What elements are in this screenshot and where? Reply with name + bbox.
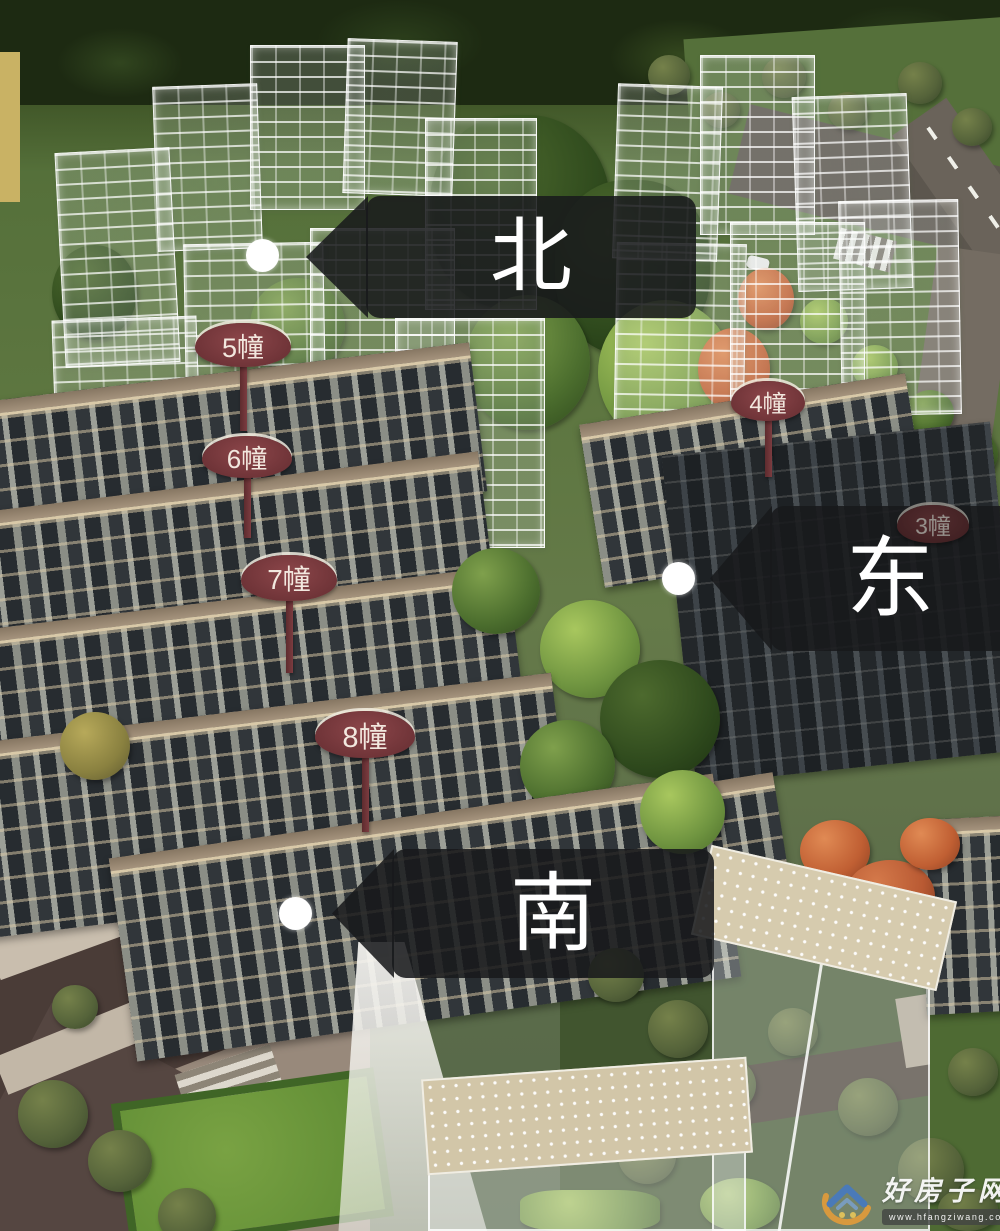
- building-sign-label: 7幢: [241, 555, 337, 601]
- north-dot: [246, 239, 279, 272]
- direction-banner-north: 北: [366, 196, 696, 318]
- watermark-text-block: 好房子网 www.hfangziwang.com: [882, 1178, 1000, 1225]
- building-sign-label: 3幢: [897, 505, 969, 543]
- site-name: 好房子网: [882, 1178, 1000, 1205]
- sign-post: [765, 421, 772, 477]
- building-sign-6: 6幢: [202, 436, 292, 538]
- tree: [60, 712, 130, 780]
- building-sign-label: 5幢: [195, 323, 291, 367]
- sign-post: [286, 601, 293, 673]
- building-sign-8: 8幢: [315, 711, 415, 832]
- south-dot: [279, 897, 312, 930]
- direction-label-north: 北: [490, 216, 572, 298]
- tree: [640, 770, 725, 854]
- building-sign-label: 6幢: [202, 436, 292, 478]
- building-sign-7: 7幢: [241, 555, 337, 673]
- sign-post: [244, 478, 251, 538]
- hfangzi-logo-icon: [816, 1178, 878, 1230]
- tree: [88, 1130, 152, 1192]
- east-dot: [662, 562, 695, 595]
- tree: [52, 985, 98, 1029]
- building-sign-5: 5幢: [195, 323, 291, 431]
- site-watermark: 好房子网 www.hfangziwang.com: [816, 1178, 1000, 1230]
- tree: [948, 1048, 998, 1096]
- building-sign-label: 4幢: [731, 381, 805, 421]
- flowering-shrub: [900, 818, 960, 870]
- building-sign-3: 3幢: [897, 505, 969, 543]
- table-edge: [0, 52, 20, 202]
- sign-post: [240, 367, 247, 431]
- building-sign-4: 4幢: [731, 381, 805, 477]
- tree: [18, 1080, 88, 1148]
- tree: [648, 1000, 708, 1058]
- tree: [452, 548, 540, 634]
- acrylic-tower: [152, 83, 263, 252]
- building-sign-label: 8幢: [315, 711, 415, 758]
- direction-banner-south: 南: [392, 849, 714, 978]
- sign-post: [362, 758, 369, 832]
- site-url: www.hfangziwang.com: [882, 1209, 1000, 1225]
- direction-label-east: 东: [846, 535, 934, 623]
- sand-table-model-photo: 5幢 6幢 7幢 8幢 4幢 3幢 北 东 南: [0, 0, 1000, 1231]
- tree: [952, 108, 992, 146]
- tree: [600, 660, 720, 778]
- direction-label-south: 南: [510, 871, 596, 957]
